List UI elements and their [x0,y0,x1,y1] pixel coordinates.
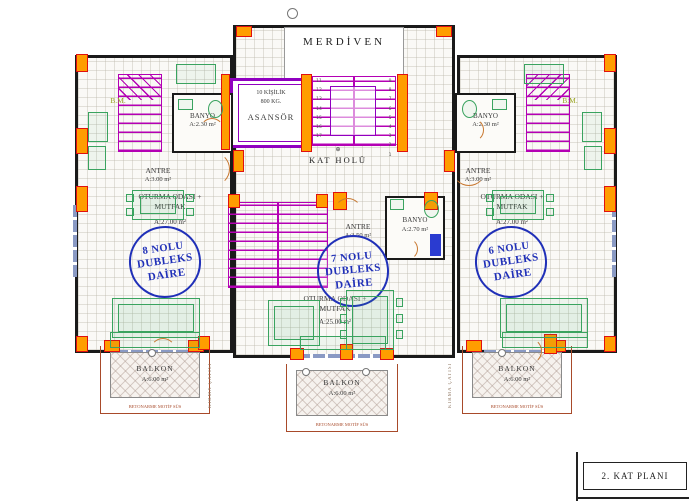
water-heater [430,234,441,256]
grid-marker-icon [362,368,370,376]
unit6-balcony-label: BALKON [472,364,562,373]
furniture [208,100,223,118]
floor-hall-label: KAT HOLÜ [298,155,378,165]
unit7-staircase-divider [277,202,279,288]
furniture [178,99,193,110]
column [76,54,88,72]
floor-plan-drawing: MERDİVEN 11121314151617 987654321 10 KİŞ… [0,0,689,501]
furniture [584,146,602,170]
furniture [340,298,347,307]
furniture [390,199,404,210]
furniture [88,146,106,170]
furniture [396,314,403,323]
column [466,340,482,352]
unit7-bathroom-area: A:2.70 m² [387,226,443,233]
unit6-balcony-railing-note: BETONARME MOTİF SÜS [466,404,568,409]
furniture [492,99,507,110]
roof-note-right: KIRMA ÇATISI [448,352,453,408]
furniture [396,330,403,339]
title-block: 2. KAT PLANI [583,462,687,490]
door-arc [516,338,542,364]
door-arc [150,338,176,364]
furniture [524,64,564,84]
furniture [424,200,439,218]
unit6-balcony-area: A:6.00 m² [472,376,562,383]
unit7-balcony-area: A:6.00 m² [296,390,388,397]
staircase-railing [330,86,376,136]
furniture [486,194,494,202]
unit6-bm-label: B.M. [558,96,582,105]
column [604,336,616,352]
grid-marker-icon [302,368,310,376]
grid-marker-icon [287,8,298,19]
furniture [506,304,582,332]
door-arc [460,118,484,142]
column [76,186,88,212]
furniture [462,100,477,118]
column [301,74,312,152]
door-arc [396,238,418,260]
roof-note-left: KIRMA ÇATISI [208,352,213,408]
column [436,26,452,37]
furniture [546,208,554,216]
furniture [126,194,134,202]
furniture [176,64,216,84]
staircase-step-numbers-left: 11121314151617 [313,77,325,141]
furniture [546,194,554,202]
furniture [582,112,602,142]
unit8-bm-label: B.M. [106,96,130,105]
furniture [486,208,494,216]
stairwell-label: MERDİVEN [284,36,404,48]
left-wall-window [73,205,77,277]
unit6-balcony [472,352,562,398]
unit8-entry-label: ANTRE [132,166,184,175]
staircase-step-numbers-right: 987654321 [384,77,396,160]
furniture [340,314,347,323]
door-arc [452,152,486,186]
right-wall-window [612,205,616,277]
furniture [502,332,588,348]
furniture [274,306,314,340]
column [233,150,244,172]
furniture [500,196,536,214]
unit8-entry-area: A:3.00 m² [132,176,184,183]
furniture [118,304,194,332]
furniture [186,208,194,216]
furniture [88,112,108,142]
unit7-balcony-label: BALKON [296,378,388,387]
door-arc [200,118,224,142]
elevator-capacity: 10 KİŞİLİK [238,90,304,96]
elevator-label: ASANSÖR [238,112,304,122]
furniture [186,194,194,202]
furniture [396,298,403,307]
column [604,186,616,212]
column [76,336,88,352]
furniture [126,208,134,216]
column [604,54,616,72]
elevation-marker-icon: ⊕ [322,146,354,153]
door-arc [196,152,230,186]
title-block-border [576,452,578,501]
column [604,128,616,154]
door-arc [334,198,362,226]
elevator-weight: 800 KG. [238,99,304,105]
column [236,26,252,37]
furniture [140,196,176,214]
column [76,128,88,154]
title-block-border-bottom [576,497,689,499]
furniture [300,336,386,350]
unit8-balcony-railing-note: BETONARME MOTİF SÜS [104,404,206,409]
column [228,194,240,208]
grid-marker-icon [498,349,506,357]
unit8-balcony-area: A:6.00 m² [110,376,200,383]
unit7-balcony-railing-note: BETONARME MOTİF SÜS [290,422,394,427]
plan-title: 2. KAT PLANI [601,471,668,481]
unit8-balcony-label: BALKON [110,364,200,373]
column [397,74,408,152]
column [316,194,328,208]
